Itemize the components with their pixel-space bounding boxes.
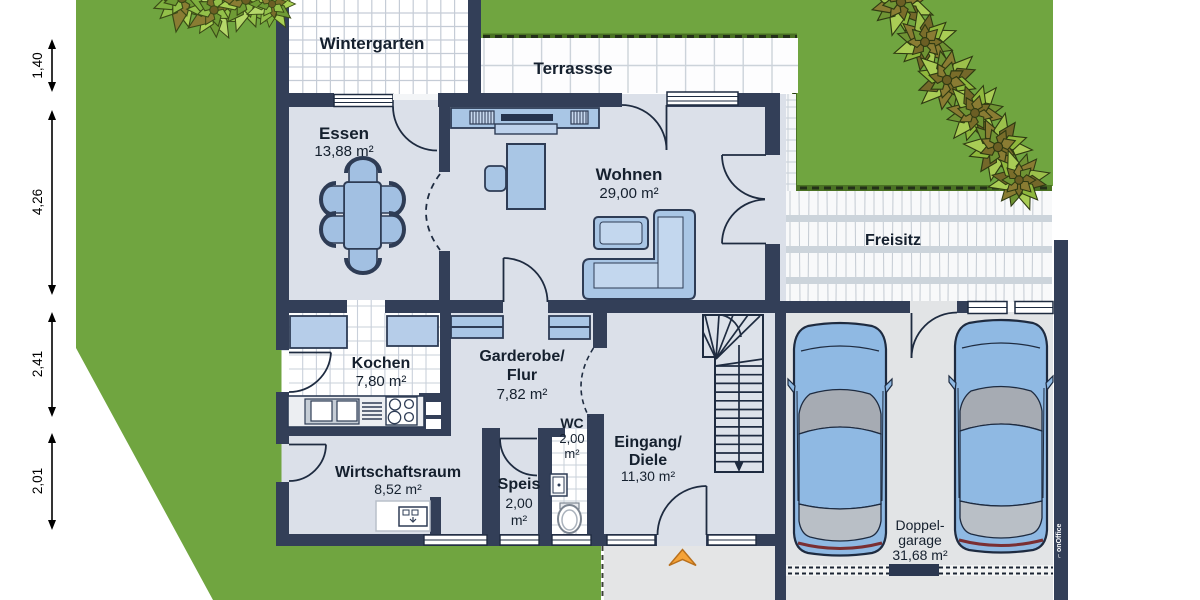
- svg-text:m²: m²: [564, 446, 580, 461]
- svg-text:13,88 m²: 13,88 m²: [314, 143, 373, 160]
- svg-text:Doppel-: Doppel-: [895, 517, 944, 533]
- svg-text:4,26: 4,26: [30, 189, 45, 215]
- svg-text:Wintergarten: Wintergarten: [320, 34, 425, 53]
- svg-text:29,00 m²: 29,00 m²: [599, 185, 658, 202]
- svg-text:Freisitz: Freisitz: [865, 232, 921, 249]
- svg-text:31,68 m²: 31,68 m²: [892, 547, 948, 563]
- svg-text:Wirtschaftsraum: Wirtschaftsraum: [335, 464, 461, 481]
- svg-text:2,41: 2,41: [30, 351, 45, 377]
- svg-text:Flur: Flur: [507, 367, 537, 384]
- svg-text:garage: garage: [898, 532, 942, 548]
- svg-text:Eingang/: Eingang/: [614, 434, 682, 451]
- svg-text:Garderobe/: Garderobe/: [479, 348, 565, 365]
- svg-text:Kochen: Kochen: [352, 355, 411, 372]
- svg-text:WC: WC: [560, 415, 583, 431]
- svg-text:Wohnen: Wohnen: [596, 165, 663, 184]
- svg-text:7,80 m²: 7,80 m²: [356, 373, 407, 390]
- svg-text:Speis: Speis: [498, 476, 541, 493]
- svg-text:11,30 m²: 11,30 m²: [621, 468, 676, 484]
- svg-text:2,01: 2,01: [30, 468, 45, 494]
- svg-text:⌐ onOffice: ⌐ onOffice: [1056, 523, 1063, 558]
- svg-text:m²: m²: [511, 512, 528, 528]
- svg-text:1,40: 1,40: [30, 52, 45, 78]
- svg-text:8,52 m²: 8,52 m²: [374, 481, 422, 497]
- svg-text:2,00: 2,00: [505, 495, 532, 511]
- svg-text:2,00: 2,00: [559, 431, 584, 446]
- svg-text:Diele: Diele: [629, 452, 667, 469]
- svg-text:Essen: Essen: [319, 124, 369, 143]
- svg-text:7,82 m²: 7,82 m²: [497, 386, 548, 403]
- svg-text:Terrassse: Terrassse: [533, 59, 612, 78]
